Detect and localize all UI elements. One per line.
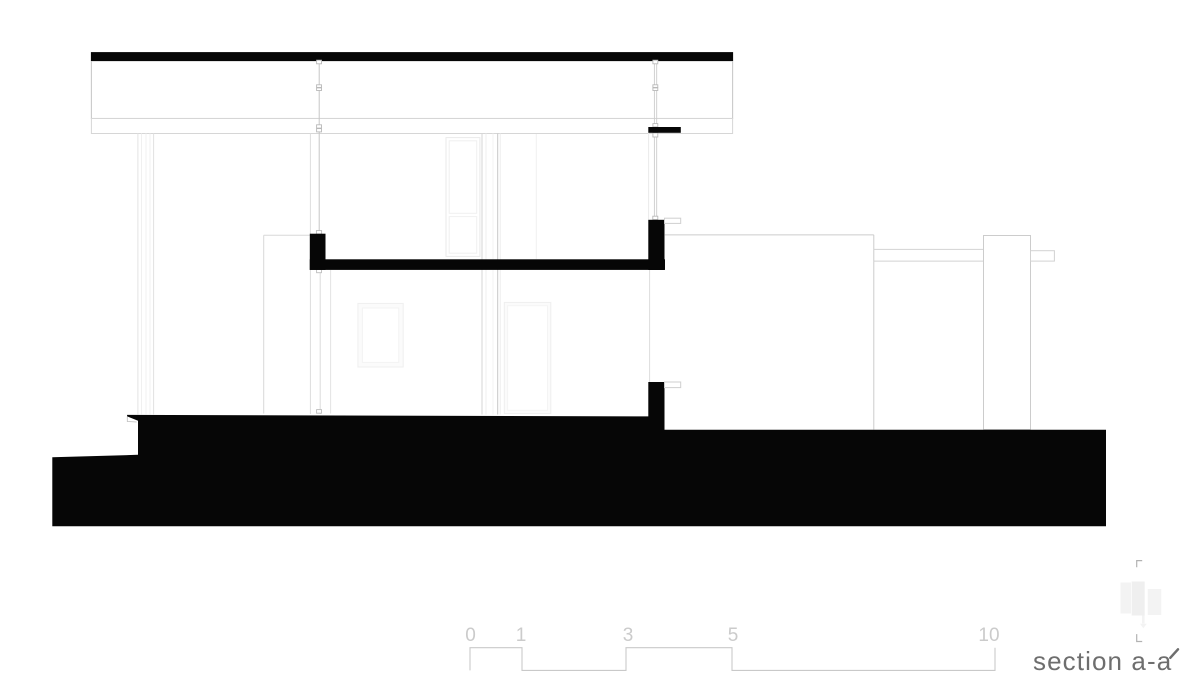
svg-text:1: 1 xyxy=(516,625,527,646)
svg-text:section a-a: section a-a xyxy=(1033,646,1172,676)
svg-text:10: 10 xyxy=(978,625,999,646)
svg-text:5: 5 xyxy=(728,625,739,646)
svg-text:3: 3 xyxy=(623,625,634,646)
svg-text:0: 0 xyxy=(465,625,476,646)
